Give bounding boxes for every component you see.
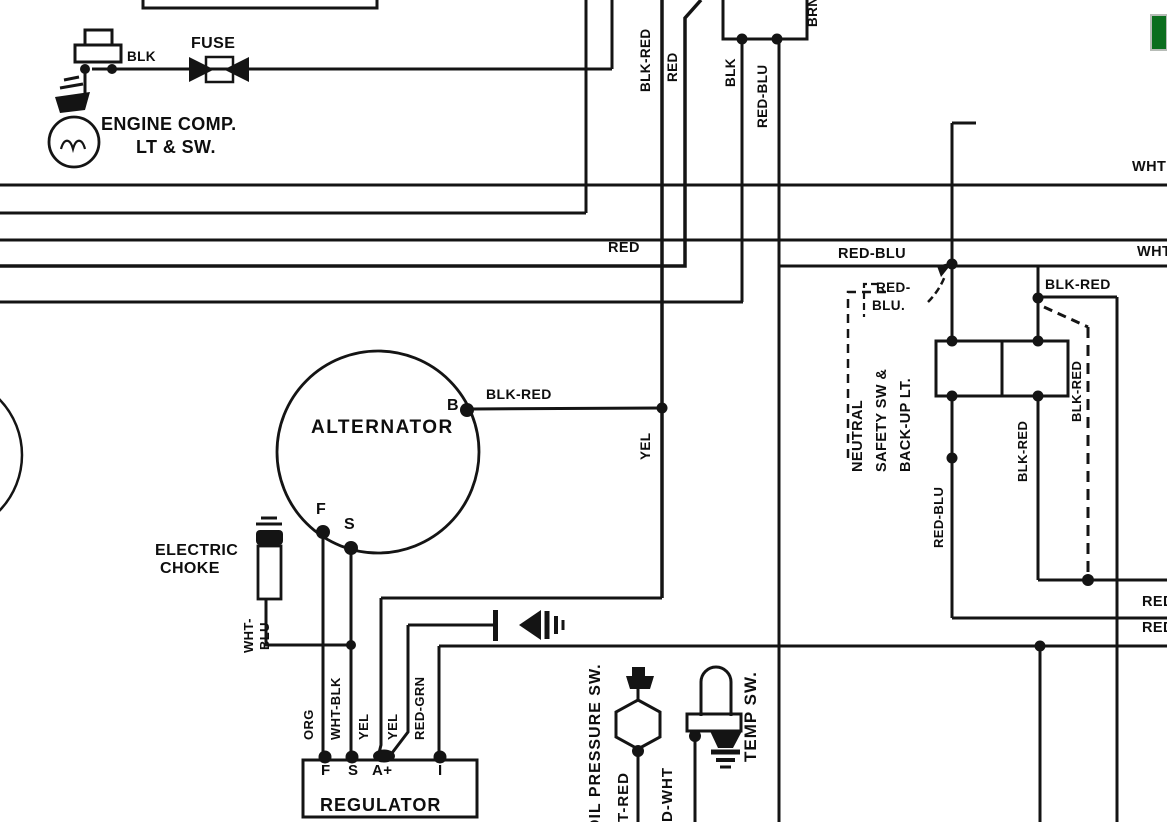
- green-marker: [1151, 15, 1167, 50]
- blu-choke-wire-label: BLU: [258, 622, 271, 650]
- temp-sw-label: TEMP SW.: [742, 671, 759, 762]
- regulator-terminal-s-label: S: [348, 763, 358, 778]
- wht-right-label-mid: WHT: [1137, 245, 1167, 260]
- cutoff-component-box: [143, 0, 377, 8]
- engine-comp-label-line2: LT & SW.: [136, 138, 216, 156]
- regulator-terminal-f-label: F: [321, 763, 331, 778]
- neutral-safety-label-line3: BACK-UP LT.: [899, 378, 914, 472]
- terminal-f-label: F: [316, 502, 326, 518]
- connector-u: [723, 0, 807, 39]
- electric-choke-label-line1: ELECTRIC: [155, 543, 238, 559]
- wht-blk-wire-label: WHT-BLK: [329, 677, 342, 740]
- b-terminal-wire: [472, 408, 662, 409]
- red-blu-drop-wire-label: RED-BLU: [756, 64, 770, 128]
- red-blu-callout-line2: BLU.: [872, 299, 905, 313]
- yel1-wire: [378, 598, 381, 757]
- t-red-wire-label: T-RED: [616, 772, 631, 822]
- org-wire-label: ORG: [302, 709, 315, 740]
- blk-red-right-label: BLK-RED: [1045, 277, 1111, 291]
- wht-right-label-top: WHT: [1132, 160, 1166, 175]
- electric-choke-label-line2: CHOKE: [160, 561, 220, 577]
- red-top-wire-label: RED: [666, 52, 680, 82]
- wiring-diagram: FUSEBLKENGINE COMP.LT & SW.BLK-REDREDBRN…: [0, 0, 1167, 822]
- engine-comp-circuit: [49, 0, 612, 213]
- brn-wire-label: BRN: [806, 0, 820, 27]
- d-wht-wire-label: D-WHT: [660, 767, 675, 822]
- red-blu-bus-label: RED-BLU: [838, 247, 906, 262]
- alternator-body: [277, 351, 479, 553]
- red-right-label-bottom: RED: [1142, 621, 1167, 636]
- blk-red-nsw-wire-label: BLK-RED: [1016, 421, 1029, 482]
- red-blu-callout-arrow: [928, 276, 945, 302]
- oil-pressure-sw-label: OIL PRESSURE SW.: [588, 663, 604, 822]
- cutoff-component-arc: [0, 375, 22, 535]
- f-terminal: [316, 525, 330, 539]
- regulator-label: REGULATOR: [320, 796, 441, 814]
- blk-fuse-wire-label: BLK: [127, 50, 156, 64]
- s-terminal: [344, 541, 358, 555]
- red-bus-label: RED: [608, 241, 640, 256]
- temp-switch-icon: [687, 667, 742, 822]
- neutral-safety-label-line2: SAFETY SW &: [875, 369, 890, 472]
- red-grn-wire-label: RED-GRN: [413, 677, 426, 740]
- connector-tab: [85, 30, 112, 45]
- engine-comp-lamp-icon: [49, 77, 99, 167]
- fuse-label: FUSE: [191, 36, 235, 52]
- red-blu-callout-line1: RED-: [876, 281, 911, 295]
- terminal-b-label: B: [447, 398, 459, 414]
- condenser-icon: [408, 610, 563, 641]
- blk-drop-wire-label: BLK: [724, 58, 738, 87]
- yel-wire-label: YEL: [639, 433, 653, 460]
- neutral-safety-circuit: [936, 123, 1167, 822]
- blk-red-dashed-wire-label: BLK-RED: [1070, 361, 1083, 422]
- engine-comp-label-line1: ENGINE COMP.: [101, 115, 237, 133]
- connector-body: [75, 45, 121, 62]
- red-right-label-top: RED: [1142, 595, 1167, 610]
- wht-choke-wire-label: WHT-: [242, 618, 255, 653]
- b-terminal: [460, 403, 474, 417]
- red-blu-nsw-wire-label: RED-BLU: [932, 487, 945, 548]
- blk-red-top-wire-label: BLK-RED: [639, 28, 653, 92]
- regulator-terminal-aplus-label: A+: [372, 763, 392, 778]
- blk-red-b-wire-label: BLK-RED: [486, 387, 552, 401]
- alternator-label: ALTERNATOR: [311, 418, 454, 437]
- yel1-wire-label: YEL: [357, 714, 370, 740]
- neutral-safety-label-line1: NEUTRAL: [851, 400, 866, 472]
- regulator-terminal-i-label: I: [438, 763, 443, 778]
- yel2-wire-label: YEL: [386, 714, 399, 740]
- terminal-s-label: S: [344, 517, 355, 533]
- wht-blu-choke-wire: [266, 599, 351, 645]
